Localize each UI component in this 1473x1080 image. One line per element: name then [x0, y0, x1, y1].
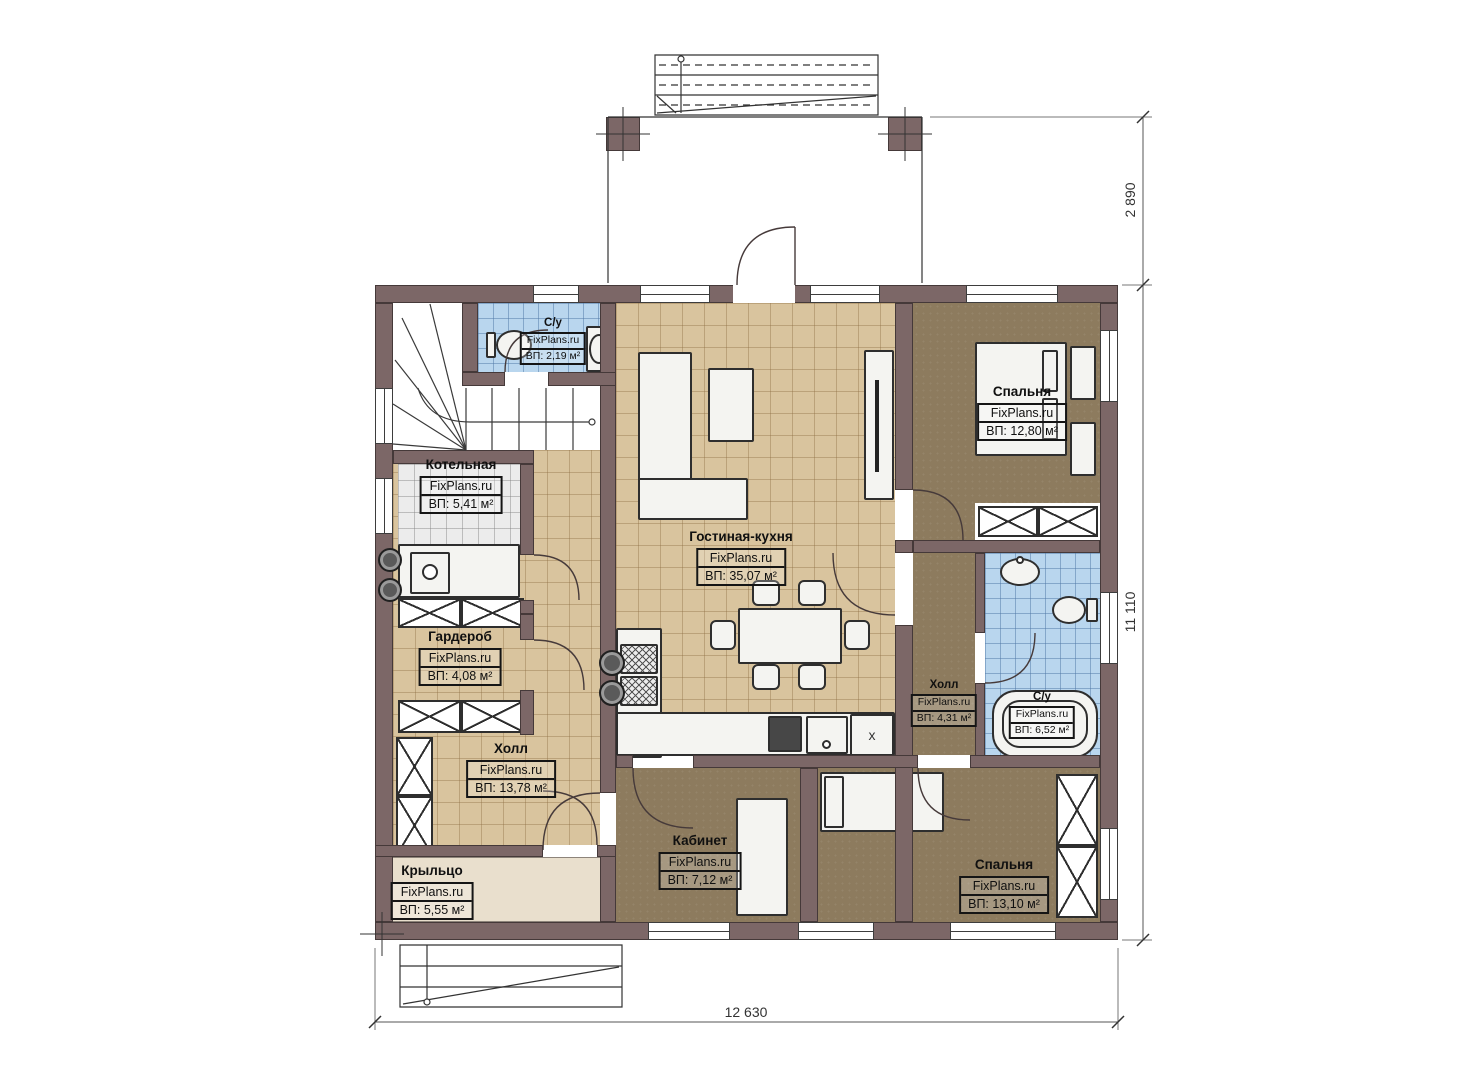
kitchen-hob [768, 716, 802, 752]
room-name: Котельная [420, 456, 503, 474]
toilet-tank [1086, 598, 1098, 622]
room-name: С/у [520, 316, 586, 331]
porch-steps [400, 945, 622, 1007]
room-info-box: FixPlans.ru ВП: 35,07 м² [696, 548, 786, 587]
room-info-box: FixPlans.ru ВП: 13,78 м² [466, 760, 556, 799]
washbasin [1000, 558, 1040, 586]
window [950, 922, 1056, 940]
room-label-bathroom-2: С/у FixPlans.ru ВП: 6,52 м² [1009, 690, 1075, 739]
hall-wardrobe-unit [396, 737, 433, 796]
window [798, 922, 874, 940]
room-area: ВП: 4,08 м² [421, 668, 500, 684]
room-label-porch: Крыльцо FixPlans.ru ВП: 5,55 м² [391, 862, 474, 921]
wall-interior [520, 464, 534, 555]
room-info-box: FixPlans.ru ВП: 4,08 м² [419, 648, 502, 687]
wardrobe-shelf [398, 598, 461, 628]
dining-chair [844, 620, 870, 650]
room-info-box: FixPlans.ru ВП: 4,31 м² [911, 694, 977, 727]
room-name: Спальня [977, 383, 1067, 401]
wall-interior [548, 372, 616, 386]
wall-interior [520, 614, 534, 640]
room-name: Спальня [959, 856, 1049, 874]
terrace-column [606, 117, 640, 151]
room-label-office: Кабинет FixPlans.ru ВП: 7,12 м² [659, 832, 742, 891]
room-info-box: FixPlans.ru ВП: 2,19 м² [520, 332, 586, 365]
room-label-bedroom-2: Спальня FixPlans.ru ВП: 13,10 м² [959, 856, 1049, 915]
wardrobe-shelf [398, 700, 461, 733]
room-info-box: FixPlans.ru ВП: 5,41 м² [420, 476, 503, 515]
boiler-unit [378, 548, 402, 572]
room-area: ВП: 13,10 м² [961, 896, 1047, 912]
wall-interior [800, 768, 818, 922]
terrace-steps [655, 55, 878, 115]
closet-shelf-bedroom-1 [1038, 506, 1098, 537]
room-label-wardrobe: Гардероб FixPlans.ru ВП: 4,08 м² [419, 628, 502, 687]
watermark: FixPlans.ru [393, 884, 472, 902]
room-label-hall-main: Холл FixPlans.ru ВП: 13,78 м² [466, 740, 556, 799]
watermark: FixPlans.ru [698, 550, 784, 568]
wall-interior [970, 755, 1100, 768]
nightstand [1070, 422, 1096, 476]
room-area: ВП: 13,78 м² [468, 780, 554, 796]
dimension-terrace-depth: 2 890 [1122, 182, 1138, 217]
watermark: FixPlans.ru [913, 696, 975, 712]
tv-cabinet [864, 350, 894, 500]
room-name: Крыльцо [391, 862, 474, 880]
window [533, 285, 579, 303]
wardrobe-shelf [461, 598, 524, 628]
room-info-box: FixPlans.ru ВП: 6,52 м² [1009, 706, 1075, 739]
room-area: ВП: 6,52 м² [1011, 724, 1073, 738]
room-info-box: FixPlans.ru ВП: 7,12 м² [659, 852, 742, 891]
watermark: FixPlans.ru [661, 854, 740, 872]
watermark: FixPlans.ru [422, 478, 501, 496]
bed-pillow [824, 776, 844, 828]
room-name: Гардероб [419, 628, 502, 646]
wardrobe-bedroom-2 [1056, 774, 1098, 846]
dining-chair [798, 664, 826, 690]
room-area: ВП: 12,80 м² [979, 423, 1065, 439]
window [375, 388, 393, 444]
window [966, 285, 1058, 303]
dimension-house-depth: 11 110 [1122, 592, 1138, 633]
wall-interior [693, 755, 918, 768]
room-label-bathroom-1: С/у FixPlans.ru ВП: 2,19 м² [520, 316, 586, 365]
dining-table [738, 608, 842, 664]
room-info-box: FixPlans.ru ВП: 12,80 м² [977, 403, 1067, 442]
wall-interior [520, 690, 534, 735]
room-name: Холл [466, 740, 556, 758]
watermark: FixPlans.ru [1011, 708, 1073, 724]
room-area: ВП: 7,12 м² [661, 872, 740, 888]
dimension-house-width: 12 630 [725, 1004, 768, 1020]
kitchen-appliance [620, 644, 658, 674]
room-area: ВП: 5,55 м² [393, 902, 472, 918]
wardrobe-bedroom-2 [1056, 846, 1098, 918]
room-area: ВП: 2,19 м² [522, 350, 584, 364]
wall-interior [975, 553, 985, 633]
toilet-bowl [1052, 596, 1086, 624]
terrace-outline [608, 117, 922, 283]
watermark: FixPlans.ru [468, 762, 554, 780]
tv-screen [875, 380, 879, 472]
floor-stair-area-left [393, 303, 462, 386]
door-arc-entrance [737, 227, 795, 285]
floor-stair-area-band [393, 386, 600, 450]
kitchen-cabinet-mark: x [869, 727, 876, 743]
dining-chair [798, 580, 826, 606]
dining-chair [710, 620, 736, 650]
window [1100, 592, 1118, 664]
wall-interior [913, 540, 1100, 553]
dining-chair [752, 664, 780, 690]
room-label-living-kitchen: Гостиная-кухня FixPlans.ru ВП: 35,07 м² [689, 528, 792, 587]
washing-machine [410, 552, 450, 594]
boiler-unit [378, 578, 402, 602]
wall-interior [616, 755, 633, 768]
wall-interior [462, 303, 478, 372]
window [810, 285, 880, 303]
sink-faucet [822, 740, 831, 749]
stove-burner [599, 650, 625, 676]
wall-interior [895, 303, 913, 490]
washing-machine-door [422, 564, 438, 580]
basin-faucet [1016, 556, 1024, 564]
stove-burner [599, 680, 625, 706]
room-label-boiler: Котельная FixPlans.ru ВП: 5,41 м² [420, 456, 503, 515]
wardrobe-shelf [461, 700, 524, 733]
room-name: С/у [1009, 690, 1075, 705]
room-name: Гостиная-кухня [689, 528, 792, 546]
entrance-door-opening [733, 285, 795, 303]
room-name: Кабинет [659, 832, 742, 850]
kitchen-appliance [620, 676, 658, 706]
window [640, 285, 710, 303]
coffee-table [708, 368, 754, 442]
window [648, 922, 730, 940]
room-info-box: FixPlans.ru ВП: 5,55 м² [391, 882, 474, 921]
room-area: ВП: 5,41 м² [422, 496, 501, 512]
terrace-column [888, 117, 922, 151]
room-area: ВП: 4,31 м² [913, 712, 975, 726]
room-label-bedroom-1: Спальня FixPlans.ru ВП: 12,80 м² [977, 383, 1067, 442]
wall-interior [462, 372, 505, 386]
wall-porch [597, 845, 616, 857]
room-info-box: FixPlans.ru ВП: 13,10 м² [959, 876, 1049, 915]
closet-shelf-bedroom-1 [978, 506, 1038, 537]
sofa-seat-section [638, 478, 748, 520]
window [1100, 828, 1118, 900]
watermark: FixPlans.ru [522, 334, 584, 350]
wall-interior [895, 540, 913, 553]
floor-plan: x [0, 0, 1473, 1080]
nightstand [1070, 346, 1096, 400]
window [375, 478, 393, 534]
watermark: FixPlans.ru [961, 878, 1047, 896]
window [1100, 330, 1118, 402]
room-area: ВП: 35,07 м² [698, 568, 784, 584]
room-name: Холл [911, 678, 977, 693]
office-desk [736, 798, 788, 916]
watermark: FixPlans.ru [421, 650, 500, 668]
toilet-tank [486, 332, 496, 358]
wall-porch [375, 845, 543, 857]
wall-interior [895, 625, 913, 922]
room-label-hall-small: Холл FixPlans.ru ВП: 4,31 м² [911, 678, 977, 727]
kitchen-cabinet-x: x [850, 714, 894, 756]
wall-interior [520, 600, 534, 614]
wall-interior [600, 850, 616, 922]
kitchen-sink [806, 716, 848, 754]
watermark: FixPlans.ru [979, 405, 1065, 423]
